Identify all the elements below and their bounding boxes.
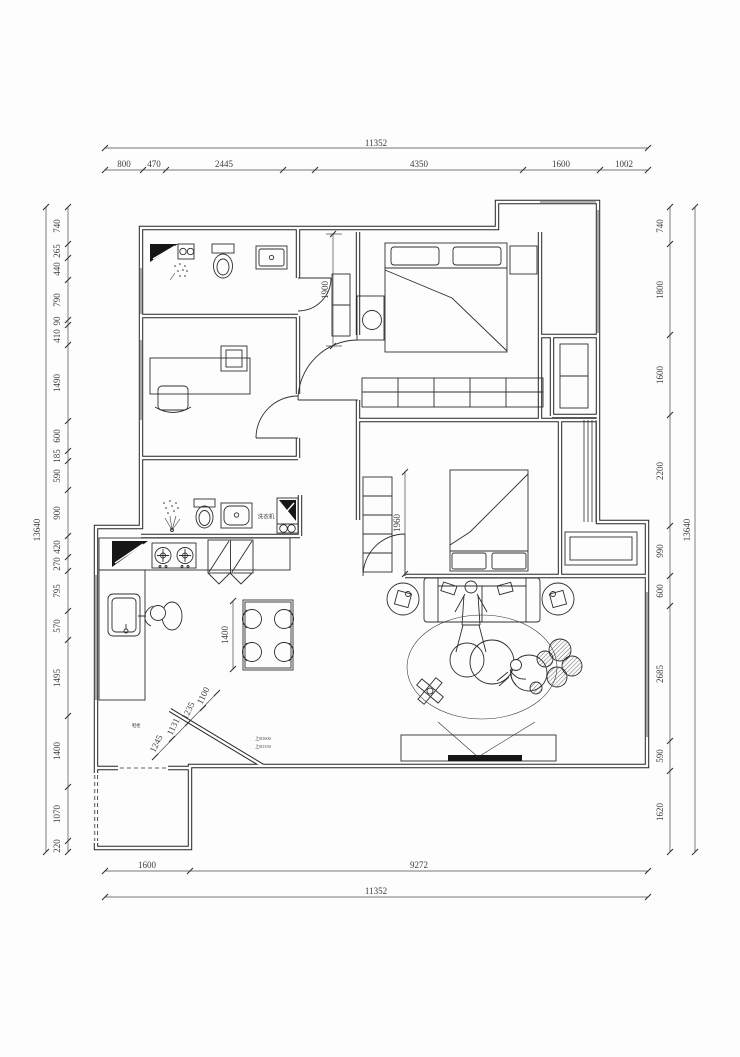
bedroom2 xyxy=(363,470,528,572)
dim-left-seg-18: 220 xyxy=(52,839,62,853)
dim-left-seg-14: 570 xyxy=(52,619,62,633)
dim-entry-1245: 1245 xyxy=(148,733,165,754)
dim-top-seg-2: 2445 xyxy=(215,159,234,169)
desk xyxy=(150,358,250,394)
hall-cabinet xyxy=(332,274,350,336)
toilet2-icon xyxy=(194,499,215,528)
floor-plan-sheet: 11352 800 470 2445 4350 1600 1002 1600 9… xyxy=(0,0,740,1057)
dim-left-seg-13: 795 xyxy=(52,584,62,598)
dim-left-seg-4: 90 xyxy=(52,316,62,326)
dim-entry-1131: 1131 xyxy=(165,716,182,736)
desk-chair xyxy=(155,386,191,413)
dining-table xyxy=(243,600,293,670)
dim-right-seg-5: 600 xyxy=(655,584,665,598)
wardrobe-master xyxy=(362,378,543,407)
dim-left-seg-12: 270 xyxy=(52,557,62,571)
dim-left-seg-3: 790 xyxy=(52,293,62,307)
dim-left-seg-1: 265 xyxy=(52,244,62,258)
balcony-closet xyxy=(560,344,588,408)
fridge-icon xyxy=(208,540,253,584)
bedside-table-lamp-icon xyxy=(357,296,384,340)
faucet-knobs-icon xyxy=(178,244,194,259)
tv-wall xyxy=(401,722,556,761)
kitchen-sink-icon xyxy=(108,594,140,636)
dim-left-seg-0: 740 xyxy=(52,219,62,233)
dim-left-seg-15: 1495 xyxy=(52,669,62,688)
washing-machine-label: 洗衣机 xyxy=(258,512,275,520)
dim-top-seg-1: 470 xyxy=(147,159,161,169)
end-table-right xyxy=(542,583,574,615)
entry-note-1: 上R1600 xyxy=(255,735,271,741)
shower-spray-icon xyxy=(170,263,188,280)
interior-dimensions: 1900 1960 1245 1131 1235 1100 鞋柜 上R1600 … xyxy=(132,231,408,760)
gas-stove-icon xyxy=(152,543,196,568)
dim-bottom-seg-0: 1600 xyxy=(138,860,157,870)
dim-entry-1100: 1100 xyxy=(195,685,212,706)
dim-right-overall: 13640 xyxy=(682,518,692,541)
study-room xyxy=(150,346,250,413)
living-room xyxy=(387,532,637,761)
washbasin2-icon xyxy=(221,503,252,528)
bed-master xyxy=(385,243,507,352)
tv-view-lines xyxy=(438,722,535,757)
door-bedroom2 xyxy=(363,534,405,576)
doors xyxy=(256,278,405,576)
washbasin-icon xyxy=(256,246,287,269)
laundry-bath: 洗衣机 xyxy=(163,498,298,533)
dim-right-seg-1: 1800 xyxy=(655,281,665,300)
dim-top-seg-4: 1600 xyxy=(552,159,571,169)
floor-plan-drawing: 11352 800 470 2445 4350 1600 1002 1600 9… xyxy=(0,0,740,1057)
dim-right-seg-7: 590 xyxy=(655,749,665,763)
dim-left-seg-10: 900 xyxy=(52,506,62,520)
dim-bottom-seg-1: 9272 xyxy=(410,860,428,870)
dining-area: 1400 xyxy=(220,598,293,672)
dim-entry-1235: 1235 xyxy=(180,700,197,721)
dim-top-seg-3: 4350 xyxy=(410,159,429,169)
dim-right-seg-4: 990 xyxy=(655,544,665,558)
dim-dining: 1400 xyxy=(220,598,236,672)
walls xyxy=(96,202,647,848)
end-table-left xyxy=(387,583,419,615)
shoe-cabinet-label: 鞋柜 xyxy=(132,722,141,729)
dim-right-seg-6: 2685 xyxy=(655,665,665,684)
dim-bed2-1960: 1960 xyxy=(392,514,402,533)
dim-right-seg-8: 1620 xyxy=(655,803,665,822)
dim-corridor-1900: 1900 xyxy=(320,281,330,300)
door-study xyxy=(256,396,298,438)
bathroom-top xyxy=(150,244,287,280)
dim-left-seg-7: 600 xyxy=(52,429,62,443)
bed-bedroom2 xyxy=(450,470,528,571)
dim-right-seg-3: 2200 xyxy=(655,462,665,481)
niche-cabinet xyxy=(565,532,637,565)
nightstand xyxy=(510,246,537,274)
dim-left-seg-6: 1490 xyxy=(52,374,62,393)
potted-plant-icon xyxy=(530,639,582,694)
dim-top-seg-5: 1002 xyxy=(615,159,633,169)
dim-dining-1400: 1400 xyxy=(220,626,230,645)
dim-left-seg-5: 410 xyxy=(52,329,62,343)
dim-left-seg-11: 420 xyxy=(52,540,62,554)
toilet-icon xyxy=(212,244,234,278)
dim-bottom-overall: 11352 xyxy=(365,886,387,896)
coffee-table xyxy=(450,640,514,684)
windows xyxy=(94,202,647,843)
dim-right-seg-2: 1600 xyxy=(655,366,665,385)
sofa xyxy=(424,578,540,622)
dim-left-seg-17: 1070 xyxy=(52,805,62,824)
dim-left-seg-2: 440 xyxy=(52,262,62,276)
dim-left-seg-16: 1400 xyxy=(52,742,62,761)
tv-icon xyxy=(448,755,522,761)
dim-left-seg-8: 185 xyxy=(52,449,62,463)
door-master-bedroom xyxy=(298,340,358,400)
side-cross-table xyxy=(410,671,449,710)
shower-spray2-icon xyxy=(163,500,180,531)
dim-top-seg-0: 800 xyxy=(117,159,131,169)
dining-chairs xyxy=(243,610,294,662)
dim-top-overall: 11352 xyxy=(365,138,387,148)
dim-left-overall: 13640 xyxy=(32,518,42,541)
flue-shaft xyxy=(584,420,596,522)
entry-note-2: 上R1350 xyxy=(255,743,271,749)
dim-right-seg-0: 740 xyxy=(655,219,665,233)
dim-left-seg-9: 590 xyxy=(52,469,62,483)
entry-dimension-chain: 1245 1131 1235 1100 xyxy=(148,685,220,760)
counter-corner2-icon xyxy=(277,498,298,533)
